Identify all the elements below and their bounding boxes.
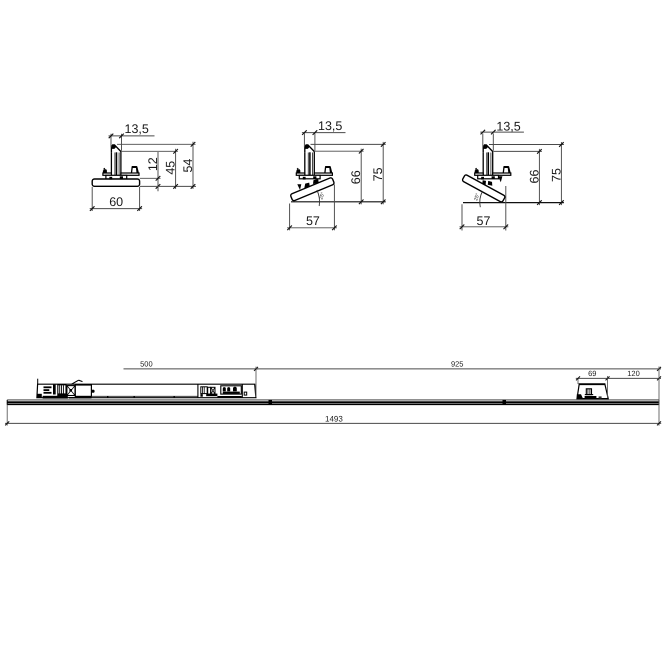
svg-text:66: 66 — [349, 170, 363, 184]
svg-text:120: 120 — [627, 369, 640, 378]
svg-text:925: 925 — [451, 360, 464, 369]
svg-text:500: 500 — [140, 360, 153, 369]
svg-text:13,5: 13,5 — [496, 119, 520, 133]
svg-text:13,5: 13,5 — [318, 119, 342, 133]
svg-text:75: 75 — [549, 168, 563, 182]
svg-text:1493: 1493 — [325, 414, 343, 423]
svg-text:69: 69 — [588, 369, 596, 378]
svg-text:54: 54 — [181, 159, 195, 173]
svg-text:57: 57 — [477, 214, 491, 228]
svg-text:75: 75 — [371, 167, 385, 181]
svg-text:12: 12 — [146, 157, 160, 171]
svg-text:13,5: 13,5 — [125, 122, 149, 136]
svg-text:57: 57 — [306, 214, 320, 228]
svg-text:60: 60 — [109, 195, 123, 209]
svg-text:66: 66 — [527, 170, 541, 184]
svg-text:45: 45 — [163, 161, 177, 175]
